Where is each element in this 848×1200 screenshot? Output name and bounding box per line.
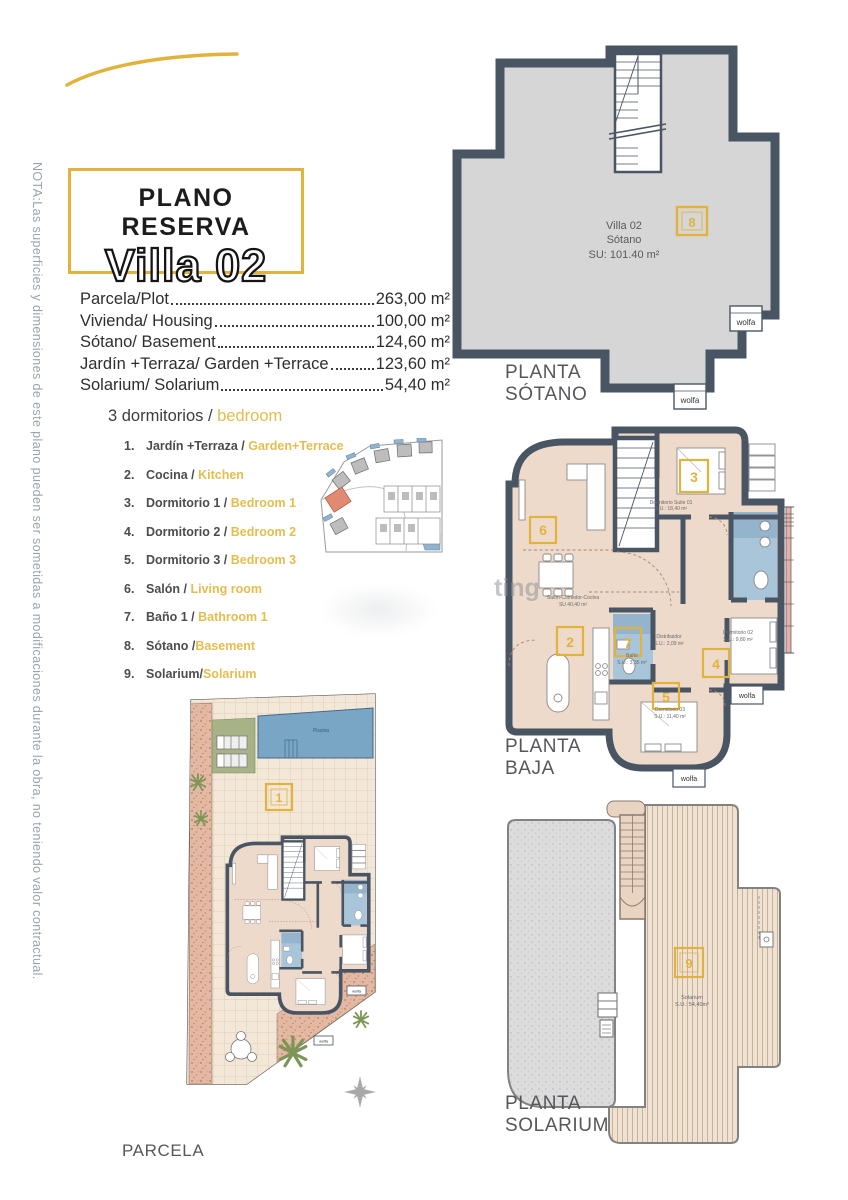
plan-parcela: Piscina wolfa wolfa 1: [181, 692, 439, 1147]
area-label: Solarium/ Solarium: [80, 376, 219, 395]
disclaimer-note: NOTA:Las superficies y dimensiones de es…: [30, 162, 44, 1062]
svg-text:wolfa: wolfa: [680, 776, 697, 783]
area-table: Parcela/Plot263,00 m² Vivienda/ Housing1…: [80, 288, 450, 395]
list-item: 5.Dormitorio 3 / Bedroom 3: [124, 554, 344, 567]
area-value: 263,00 m²: [376, 290, 450, 309]
svg-text:S.U.: 2,09 m²: S.U.: 2,09 m²: [654, 641, 684, 647]
svg-text:7: 7: [624, 635, 632, 651]
svg-text:6: 6: [539, 522, 547, 538]
area-value: 123,60 m²: [376, 355, 450, 374]
legend-header-en: bedroom: [217, 407, 282, 425]
roof-area: [508, 820, 615, 1107]
svg-text:Distribuidor: Distribuidor: [656, 634, 682, 640]
svg-text:S.U.: 9,80 m²: S.U.: 9,80 m²: [723, 637, 753, 643]
svg-text:4: 4: [712, 656, 720, 672]
pool: Piscina: [258, 708, 373, 758]
svg-text:Solarium: Solarium: [681, 995, 703, 1001]
scale-ruler: [783, 507, 794, 653]
dotted-leader: [221, 389, 382, 391]
svg-text:wolfa: wolfa: [319, 1040, 329, 1044]
list-item: 1.Jardín +Terraza / Garden+Terrace: [124, 440, 344, 453]
svg-text:wolfa: wolfa: [352, 990, 362, 994]
legend-list: 1.Jardín +Terraza / Garden+Terrace 2.Coc…: [124, 440, 344, 681]
sotano-stairs: [609, 54, 666, 172]
wolfa-vent: wolfa: [731, 686, 763, 704]
dotted-leader: [218, 346, 374, 348]
caption-sotano: PLANTA SÓTANO: [505, 362, 587, 406]
svg-text:S.U.: 11,40 m²: S.U.: 11,40 m²: [654, 714, 686, 720]
svg-text:1: 1: [276, 791, 283, 805]
svg-text:5: 5: [662, 689, 670, 705]
svg-text:3: 3: [690, 469, 698, 485]
watermark: ting: [494, 574, 540, 603]
svg-text:SU: 101.40 m²: SU: 101.40 m²: [589, 249, 660, 261]
area-row: Solarium/ Solarium54,40 m²: [80, 374, 450, 395]
list-item: 7.Baño 1 / Bathroom 1: [124, 611, 344, 624]
site-key-plan: [318, 438, 444, 556]
svg-text:9: 9: [685, 956, 692, 971]
svg-text:Sótano: Sótano: [607, 234, 642, 246]
legend-header-es: 3 dormitorios /: [108, 407, 217, 425]
dotted-leader: [171, 303, 374, 305]
area-row: Parcela/Plot263,00 m²: [80, 288, 450, 309]
list-item: 9.Solarium/Solarium: [124, 668, 344, 681]
corner-arc-decoration: [64, 50, 242, 90]
svg-text:Dormitorio 02: Dormitorio 02: [723, 630, 753, 636]
area-label: Jardín +Terraza/ Garden +Terrace: [80, 355, 329, 374]
list-item: 2.Cocina / Kitchen: [124, 469, 344, 482]
gravel-strip: [189, 703, 212, 1084]
svg-text:S.U.: 54,40m²: S.U.: 54,40m²: [675, 1002, 709, 1008]
caption-baja: PLANTA BAJA: [505, 736, 581, 780]
svg-text:wolfa: wolfa: [736, 318, 756, 327]
dotted-leader: [331, 368, 374, 370]
svg-text:S.U.: 3,35 m²: S.U.: 3,35 m²: [617, 660, 647, 666]
area-label: Sótano/ Basement: [80, 333, 216, 352]
compass-star-icon: [344, 1076, 376, 1108]
list-item: 6.Salón / Living room: [124, 583, 344, 596]
plan-sheet: NOTA:Las superficies y dimensiones de es…: [0, 0, 848, 1200]
svg-text:S.U.: 18,40 m²: S.U.: 18,40 m²: [655, 506, 688, 512]
area-row: Sótano/ Basement124,60 m²: [80, 331, 450, 352]
svg-text:wolfa: wolfa: [680, 396, 700, 405]
svg-text:Baño: Baño: [626, 653, 638, 659]
list-item: 3.Dormitorio 1 / Bedroom 1: [124, 497, 344, 510]
svg-text:Salón-Comedor-Cocina: Salón-Comedor-Cocina: [547, 595, 599, 601]
caption-solarium: PLANTA SOLARIUM: [505, 1093, 609, 1137]
svg-text:Villa 02: Villa 02: [606, 220, 642, 232]
title-box: PLANO RESERVA Villa 02: [68, 168, 304, 274]
wolfa-vent: wolfa: [730, 306, 762, 331]
pool-label: Piscina: [313, 728, 329, 734]
plan-sotano: 8 Villa 02 Sótano SU: 101.40 m² wolfa wo…: [452, 36, 792, 414]
svg-text:SU 40,40 m²: SU 40,40 m²: [559, 602, 587, 608]
area-label: Vivienda/ Housing: [80, 312, 213, 331]
area-row: Jardín +Terraza/ Garden +Terrace123,60 m…: [80, 352, 450, 373]
svg-text:8: 8: [688, 215, 695, 230]
dotted-leader: [215, 325, 374, 327]
svg-text:Dormitorio 03: Dormitorio 03: [655, 707, 685, 713]
svg-text:2: 2: [566, 634, 574, 650]
caption-parcela: PARCELA: [122, 1140, 204, 1162]
watermark-blob: [318, 584, 438, 636]
area-value: 100,00 m²: [376, 312, 450, 331]
list-item: 8.Sótano /Basement: [124, 640, 344, 653]
list-item: 4.Dormitorio 2 / Bedroom 2: [124, 526, 344, 539]
area-value: 124,60 m²: [376, 333, 450, 352]
area-label: Parcela/Plot: [80, 290, 169, 309]
area-row: Vivienda/ Housing100,00 m²: [80, 309, 450, 330]
legend-header: 3 dormitorios / bedroom: [108, 407, 282, 426]
area-value: 54,40 m²: [385, 376, 450, 395]
wolfa-vent: wolfa: [674, 384, 706, 409]
plan-kicker: PLANO RESERVA: [71, 184, 301, 242]
svg-text:wolfa: wolfa: [738, 693, 755, 700]
villa-name: Villa 02: [71, 242, 301, 289]
wolfa-vent: wolfa: [673, 769, 705, 787]
